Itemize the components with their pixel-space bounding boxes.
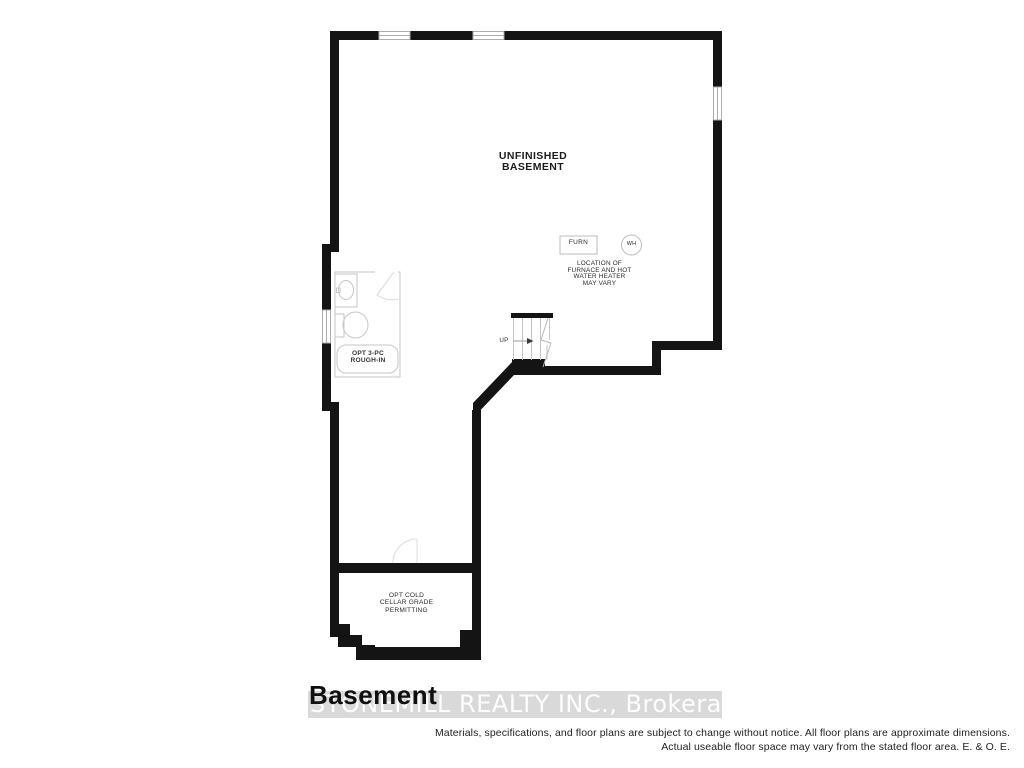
bathroom-door-arc [377, 295, 399, 300]
wall-cold-cellar-top [339, 563, 472, 573]
label-line: OPT 3-PC [338, 350, 398, 357]
bath-rough-in-label: OPT 3-PC ROUGH-IN [338, 350, 398, 364]
cold-cellar-label: OPT COLD CELLAR GRADE PERMITTING [356, 592, 457, 614]
wall-main-bottom [512, 359, 661, 375]
cold-cellar-door [393, 539, 417, 563]
room-label-line: UNFINISHED [453, 151, 613, 162]
furnace-label: FURN [560, 240, 597, 247]
stairs-up-label: UP [496, 338, 512, 345]
label-line: ROUGH-IN [338, 357, 398, 364]
wall-left-jog-bottom [322, 402, 339, 411]
room-label-unfinished-basement: UNFINISHED BASEMENT [453, 151, 613, 172]
label-line: CELLAR GRADE [356, 599, 457, 606]
stair-arrow-icon [527, 338, 534, 344]
floor-plan-page: UNFINISHED BASEMENT FURN WH LOCATION OF … [0, 0, 1024, 768]
disclaimer-line: Materials, specifications, and floor pla… [370, 726, 1010, 740]
wall-right-upper [713, 31, 722, 87]
wall-step-horizontal [652, 341, 722, 350]
room-label-line: BASEMENT [453, 162, 613, 173]
toilet-bowl-icon [343, 312, 368, 338]
sink-basin-icon [339, 281, 354, 300]
wall-left-jog-top [322, 244, 339, 252]
label-line: PERMITTING [356, 607, 457, 614]
windows [323, 32, 722, 344]
floor-title: Basement [309, 681, 437, 709]
wall-diagonal [473, 360, 514, 418]
disclaimer-line: Actual useable floor space may vary from… [370, 740, 1010, 754]
wall-left-outer-lower [322, 343, 331, 402]
wall-left-lower [330, 411, 339, 626]
furnace-location-note: LOCATION OF FURNACE AND HOT WATER HEATER… [549, 261, 650, 287]
label-line: OPT COLD [356, 592, 457, 599]
wall-top-middle [410, 31, 473, 40]
water-heater-label: WH [621, 242, 642, 248]
wall-left-outer-upper [322, 252, 331, 310]
wall-top-right [504, 31, 722, 40]
note-line: MAY VARY [549, 281, 650, 288]
wall-bottom-left-step-3 [356, 645, 375, 660]
wall-stair-header [511, 313, 553, 318]
wall-right-lower [713, 120, 722, 350]
wall-bottom-right-notch [460, 630, 473, 649]
wall-left-upper [330, 31, 339, 244]
disclaimer: Materials, specifications, and floor pla… [370, 726, 1010, 754]
wall-corridor-right [472, 410, 481, 660]
floor-plan-drawing [0, 0, 1024, 768]
cellar-door-arc [393, 539, 417, 563]
bathroom-door-leaf [377, 272, 394, 295]
